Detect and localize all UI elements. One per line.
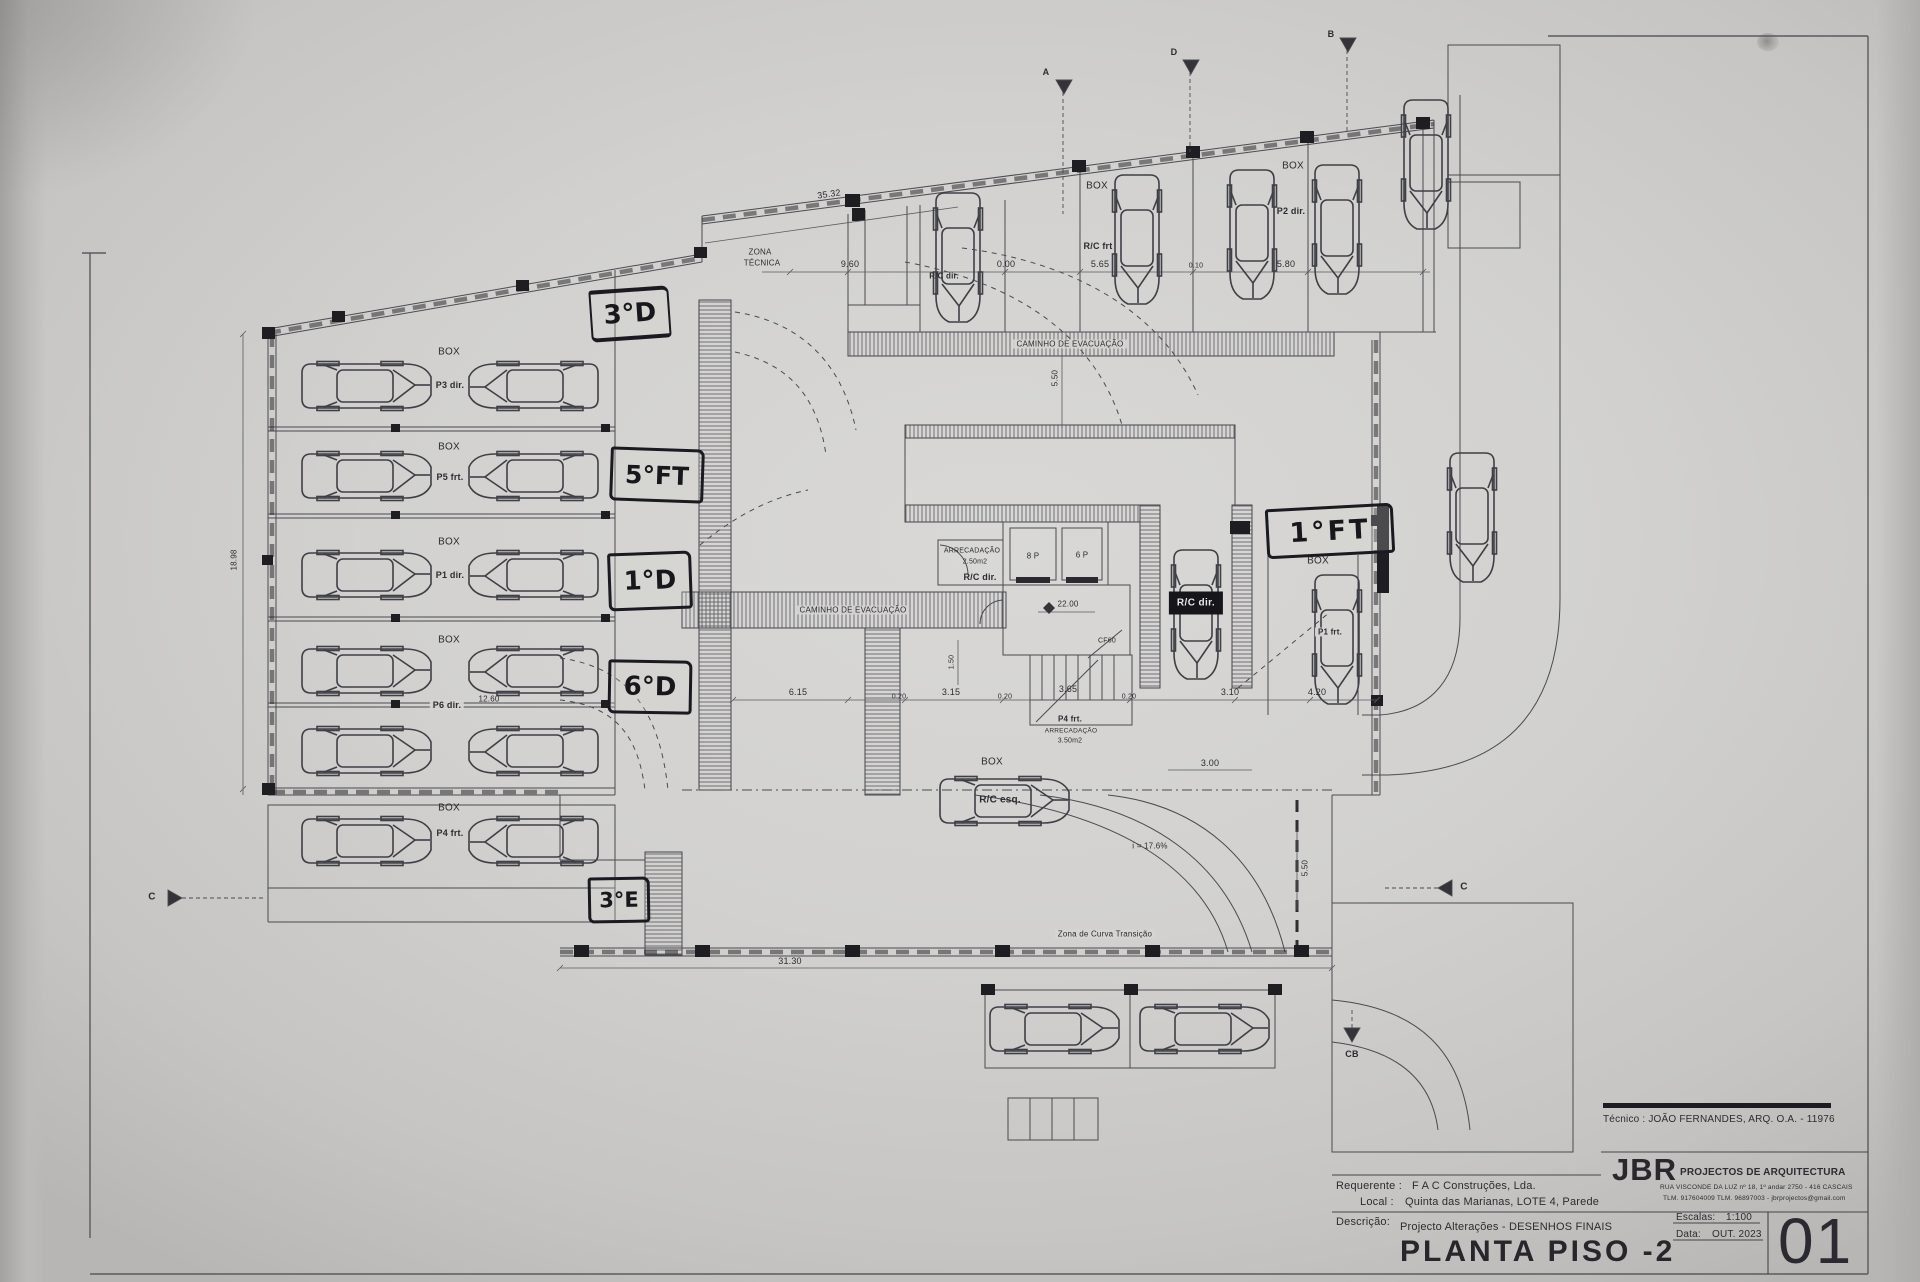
plan-linework: [0, 0, 1920, 1282]
box-label: BOX: [438, 347, 460, 358]
drawing-title: PLANTA PISO -2: [1400, 1235, 1675, 1269]
zona-tecnica-label: ZONA: [748, 248, 771, 257]
dim-label: 12.60: [478, 695, 499, 704]
dim-label: 5.50: [1301, 860, 1310, 876]
dim-label: 0.20: [998, 694, 1012, 701]
evacuation-route-label: CAMINHO DE EVACUAÇÃO: [797, 606, 910, 615]
dim-label: 3.00: [1201, 758, 1219, 768]
dim-label: 0.20: [892, 694, 906, 701]
titleblock-rule: [1603, 1103, 1831, 1108]
sheet-number: 01: [1778, 1204, 1853, 1278]
dim-label: 3.15: [942, 687, 960, 697]
box-label: BOX: [1086, 181, 1108, 192]
stall-label: R/C dir.: [963, 572, 996, 582]
stall-label: R/C frt: [1084, 241, 1113, 251]
stall-label: P3 dir.: [436, 380, 464, 390]
dim-label: 1.50: [949, 655, 956, 669]
box-label: BOX: [1307, 556, 1329, 567]
curve-transition-note: Zona de Curva Transição: [1055, 930, 1155, 939]
section-marker: A: [1043, 67, 1050, 77]
dim-label: 4.20: [1308, 687, 1326, 697]
photographed-floor-plan-sheet: ZONA TÉCNICA 35.32 9.60 0.00 R/C dir. BO…: [0, 0, 1920, 1282]
box-label: BOX: [438, 442, 460, 453]
section-marker: C: [148, 892, 155, 903]
section-marker: B: [1328, 29, 1335, 39]
local-label: Local :: [1360, 1196, 1394, 1208]
dim-label: 0.10: [1189, 263, 1203, 270]
handwritten-annotation: 5°FT: [609, 446, 705, 503]
firm-contact: TLM. 917604009 TLM. 96897003 - jbrprojec…: [1663, 1195, 1846, 1202]
stall-label: P1 dir.: [436, 570, 464, 580]
dim-label: 5.65: [1091, 259, 1109, 269]
section-marker: CB: [1345, 1049, 1358, 1059]
storage-label: ARRECADAÇÃO: [1045, 728, 1097, 735]
scale-label: Escalas:: [1676, 1212, 1715, 1223]
descricao-value: Projecto Alterações - DESENHOS FINAIS: [1400, 1221, 1612, 1233]
box-label: BOX: [438, 635, 460, 646]
section-marker: D: [1171, 47, 1178, 57]
stall-label: P4 frt.: [437, 828, 464, 838]
stall-label: P2 dir.: [1277, 206, 1305, 216]
dim-label: 3.65: [1059, 684, 1077, 694]
dim-label: 9.60: [841, 259, 859, 269]
zona-tecnica-label: TÉCNICA: [744, 259, 781, 268]
local-value: Quinta das Marianas, LOTE 4, Parede: [1405, 1196, 1599, 1208]
ramp-slope-label: i = 17.6%: [1132, 842, 1167, 851]
requerente-value: F A C Construções, Lda.: [1412, 1180, 1536, 1192]
handwritten-annotation: 6°D: [608, 659, 693, 714]
scale-value: 1:100: [1726, 1212, 1752, 1223]
storage-area-label: 3.50m2: [1058, 738, 1083, 745]
descricao-label: Descrição:: [1336, 1216, 1390, 1228]
date-label: Data:: [1676, 1229, 1701, 1240]
handwritten-annotation: 1°D: [607, 551, 693, 612]
storage-area-label: 2.50m2: [963, 559, 988, 566]
dim-label: 18.98: [230, 549, 239, 570]
stall-label: P4 frt.: [1055, 715, 1085, 724]
stall-label-inverse: R/C dir.: [1169, 592, 1223, 615]
level-label: 22.00: [1057, 600, 1078, 609]
dim-label: 5.80: [1277, 259, 1295, 269]
door-label: CF60: [1098, 638, 1116, 645]
handwritten-annotation: 1°FT: [1265, 503, 1395, 560]
storage-label: ARRECADAÇÃO: [944, 548, 1000, 555]
box-label: BOX: [981, 757, 1003, 768]
stall-label: R/C esq.: [979, 795, 1021, 806]
elevator-label: 8 P: [1027, 552, 1040, 561]
dim-label: 0.00: [997, 259, 1015, 269]
box-label: BOX: [1282, 161, 1304, 172]
stall-label: P1 frt.: [1315, 628, 1345, 637]
technician-line: Técnico : JOÃO FERNANDES, ARQ. O.A. - 11…: [1603, 1114, 1835, 1125]
car-symbols: [302, 100, 1497, 1054]
date-value: OUT. 2023: [1712, 1229, 1762, 1240]
box-label: BOX: [438, 537, 460, 548]
firm-address: RUA VISCONDE DA LUZ nº 18, 1º andar 2750…: [1660, 1184, 1853, 1191]
requerente-label: Requerente :: [1336, 1180, 1402, 1192]
firm-name: PROJECTOS DE ARQUITECTURA: [1680, 1167, 1846, 1178]
handwritten-annotation: 3°D: [588, 285, 671, 342]
evacuation-route-label: CAMINHO DE EVACUAÇÃO: [1014, 340, 1127, 349]
elevator-label: 6 P: [1076, 551, 1089, 560]
firm-logo-text: JBR: [1612, 1152, 1677, 1188]
stall-label: P6 dir.: [430, 700, 464, 710]
dim-label: 3.10: [1221, 687, 1239, 697]
dim-label: 31.30: [778, 956, 802, 966]
stall-label: P5 frt.: [437, 472, 464, 482]
section-marker: C: [1460, 882, 1467, 893]
box-label: BOX: [438, 803, 460, 814]
dim-label: 0.20: [1122, 694, 1136, 701]
dim-label: 5.50: [1051, 370, 1060, 386]
handwritten-annotation: 3°E: [588, 876, 651, 923]
stall-label: R/C dir.: [929, 272, 959, 281]
dim-label: 6.15: [789, 687, 807, 697]
